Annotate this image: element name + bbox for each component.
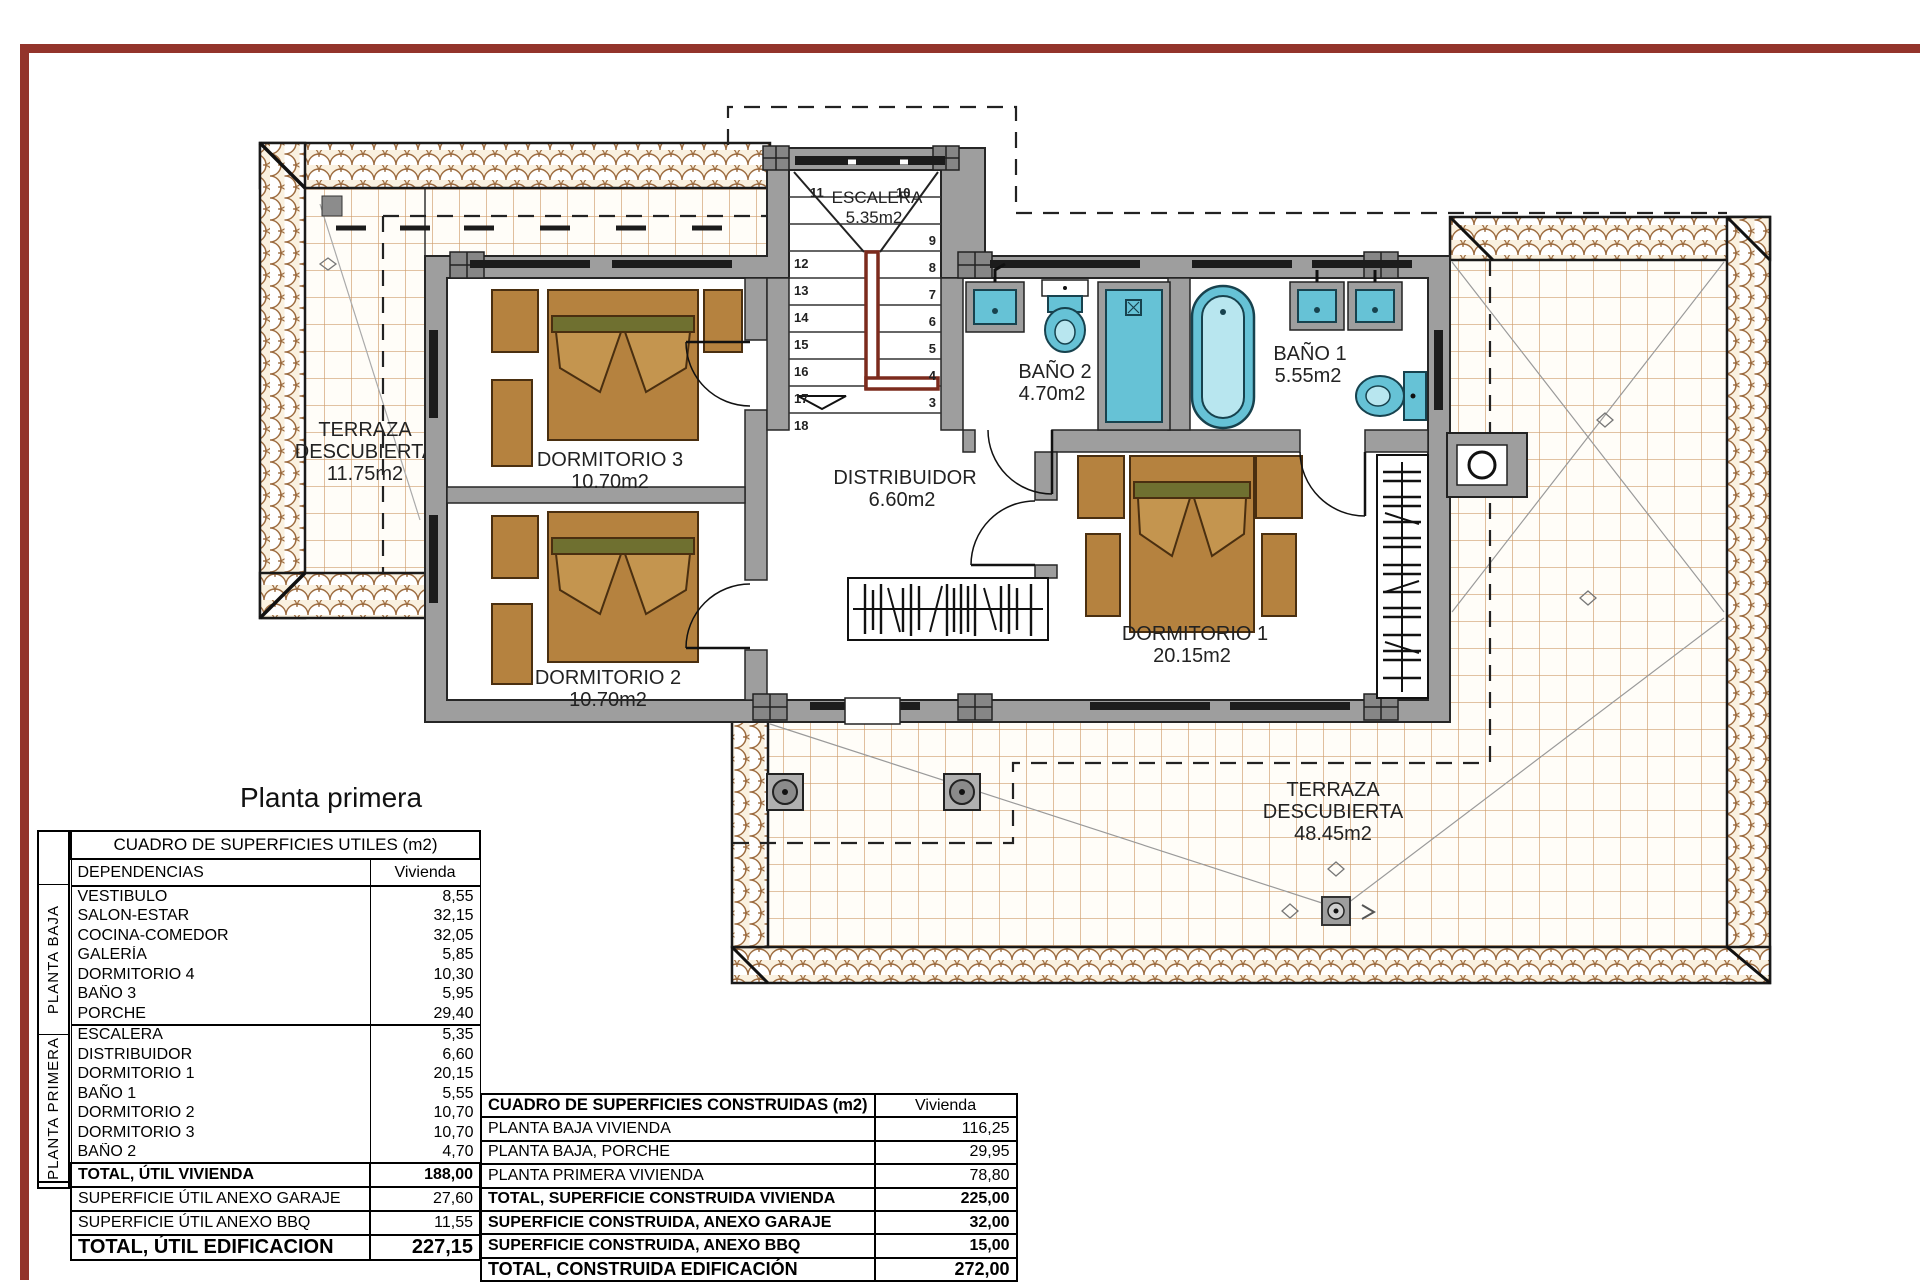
group-spacer xyxy=(39,832,68,885)
utiles-col2-header: Vivienda xyxy=(370,859,480,886)
stair-step-7: 7 xyxy=(929,287,936,302)
table-row: SALON-ESTAR32,15 xyxy=(71,907,480,927)
label-dormitorio-1-area: 20.15m2 xyxy=(1153,645,1231,667)
terrace-left-label-2: DESCUBIERTA xyxy=(295,441,436,463)
toilet-bano-2 xyxy=(1042,280,1088,352)
stair-step-18: 18 xyxy=(794,418,808,433)
table-row: PORCHE29,40 xyxy=(71,1004,480,1025)
stair-step-5: 5 xyxy=(929,341,936,356)
table-row: BAÑO 15,55 xyxy=(71,1084,480,1104)
construidas-title: CUADRO DE SUPERFICIES CONSTRUIDAS (m2) xyxy=(481,1094,875,1117)
group-planta-baja: PLANTA BAJA xyxy=(39,885,68,1035)
stair-step-14: 14 xyxy=(794,310,809,325)
stair-step-3: 3 xyxy=(929,395,936,410)
table-row: PLANTA BAJA, PORCHE29,95 xyxy=(481,1141,1017,1164)
roof-band-top xyxy=(260,143,770,188)
utiles-col1-header: DEPENDENCIAS xyxy=(71,859,370,886)
label-dormitorio-3: DORMITORIO 3 xyxy=(537,449,683,471)
label-dormitorio-1: DORMITORIO 1 xyxy=(1122,623,1268,645)
bed-dormitorio-1 xyxy=(1078,456,1302,632)
label-dormitorio-3-area: 10.70m2 xyxy=(571,471,649,493)
terrace-rear-label-1: TERRAZA xyxy=(1286,779,1380,801)
label-bano-1: BAÑO 1 xyxy=(1273,341,1346,365)
stair-step-6: 6 xyxy=(929,314,936,329)
shower-bano-2 xyxy=(1098,282,1170,430)
roof-band-right-top xyxy=(1450,217,1770,260)
construidas-col2-header: Vivienda xyxy=(875,1094,1017,1117)
stair-step-4: 4 xyxy=(929,368,937,383)
table-row: BAÑO 24,70 xyxy=(71,1143,480,1164)
toilet-bano-1 xyxy=(1356,372,1426,420)
label-escalera: ESCALERA xyxy=(832,188,923,207)
terrace-left-label-1: TERRAZA xyxy=(318,419,412,441)
table-row-total: SUPERFICIE ÚTIL ANEXO GARAJE27,60 xyxy=(71,1187,480,1211)
table-row: COCINA-COMEDOR32,05 xyxy=(71,926,480,946)
stair-step-11: 11 xyxy=(810,185,824,200)
stair-step-12: 12 xyxy=(794,256,808,271)
stair-step-9: 9 xyxy=(929,233,936,248)
terrace-rear-label-3: 48.45m2 xyxy=(1294,823,1372,845)
terrace-left-tiles xyxy=(305,188,425,573)
table-row-total: SUPERFICIE ÚTIL ANEXO BBQ11,55 xyxy=(71,1211,480,1235)
stair-step-16: 16 xyxy=(794,364,808,379)
terrace-column xyxy=(767,774,803,810)
stair-step-17: 17 xyxy=(794,391,808,406)
roof-band-rear-bottom xyxy=(732,947,1770,983)
label-dormitorio-2: DORMITORIO 2 xyxy=(535,667,681,689)
label-bano-2-area: 4.70m2 xyxy=(1019,383,1086,405)
table-row: DORMITORIO 310,70 xyxy=(71,1123,480,1143)
table-row: BAÑO 35,95 xyxy=(71,985,480,1005)
terrace-left-label-3: 11.75m2 xyxy=(327,463,403,485)
label-escalera-area: 5.35m2 xyxy=(846,208,903,227)
table-superficies-utiles: CUADRO DE SUPERFICIES UTILES (m2) DEPEND… xyxy=(70,830,481,1261)
chimney xyxy=(1447,433,1527,497)
terrace-rear-label-2: DESCUBIERTA xyxy=(1263,801,1404,823)
table-row: DISTRIBUIDOR6,60 xyxy=(71,1045,480,1065)
table-row: PLANTA BAJA VIVIENDA116,25 xyxy=(481,1117,1017,1140)
stair-railing-vertical xyxy=(866,252,878,388)
table-row-total: TOTAL, ÚTIL VIVIENDA188,00 xyxy=(71,1163,480,1187)
table-row: CUADRO DE SUPERFICIES CONSTRUIDAS (m2)Vi… xyxy=(481,1094,1017,1117)
bathtub-bano-1 xyxy=(1192,286,1254,428)
page: TERRAZA DESCUBIERTA 11.75m2 xyxy=(0,0,1920,1280)
roof-band-right xyxy=(1727,217,1770,983)
stair-step-13: 13 xyxy=(794,283,808,298)
table-row-total: TOTAL, SUPERFICIE CONSTRUIDA VIVIENDA225… xyxy=(481,1188,1017,1211)
table-row: DORMITORIO 120,15 xyxy=(71,1065,480,1085)
table-row-total: TOTAL, CONSTRUIDA EDIFICACIÓN272,00 xyxy=(481,1258,1017,1281)
group-planta-primera: PLANTA PRIMERA xyxy=(39,1035,68,1183)
roof-band-left xyxy=(260,143,305,618)
table-row: PLANTA PRIMERA VIVIENDA78,80 xyxy=(481,1164,1017,1187)
table-row: GALERÍA5,85 xyxy=(71,946,480,966)
table-row: DORMITORIO 410,30 xyxy=(71,965,480,985)
table-row: VESTIBULO8,55 xyxy=(71,886,480,907)
stair-step-8: 8 xyxy=(929,260,936,275)
stair-step-15: 15 xyxy=(794,337,808,352)
label-distribuidor: DISTRIBUIDOR xyxy=(833,467,976,489)
label-bano-2: BAÑO 2 xyxy=(1018,359,1091,383)
label-bano-1-area: 5.55m2 xyxy=(1275,365,1342,387)
stair-railing-horizontal xyxy=(866,378,938,389)
table-row-total: TOTAL, ÚTIL EDIFICACION227,15 xyxy=(71,1235,480,1260)
table-row: DORMITORIO 210,70 xyxy=(71,1104,480,1124)
rear-door-opening xyxy=(845,698,900,724)
label-distribuidor-area: 6.60m2 xyxy=(869,489,936,511)
table-row-total: SUPERFICIE CONSTRUIDA, ANEXO BBQ15,00 xyxy=(481,1234,1017,1257)
roof-band-rear-left xyxy=(732,720,768,947)
floor-group-column: PLANTA BAJA PLANTA PRIMERA xyxy=(37,830,70,1189)
table-row-total: SUPERFICIE CONSTRUIDA, ANEXO GARAJE32,00 xyxy=(481,1211,1017,1234)
plan-title: Planta primera xyxy=(240,782,500,814)
terrace-fixture-box xyxy=(322,196,342,216)
table-row: ESCALERA5,35 xyxy=(71,1025,480,1046)
utiles-title: CUADRO DE SUPERFICIES UTILES (m2) xyxy=(71,831,480,859)
label-dormitorio-2-area: 10.70m2 xyxy=(569,689,647,711)
table-superficies-construidas: CUADRO DE SUPERFICIES CONSTRUIDAS (m2)Vi… xyxy=(480,1093,1018,1282)
terrace-column xyxy=(944,774,980,810)
